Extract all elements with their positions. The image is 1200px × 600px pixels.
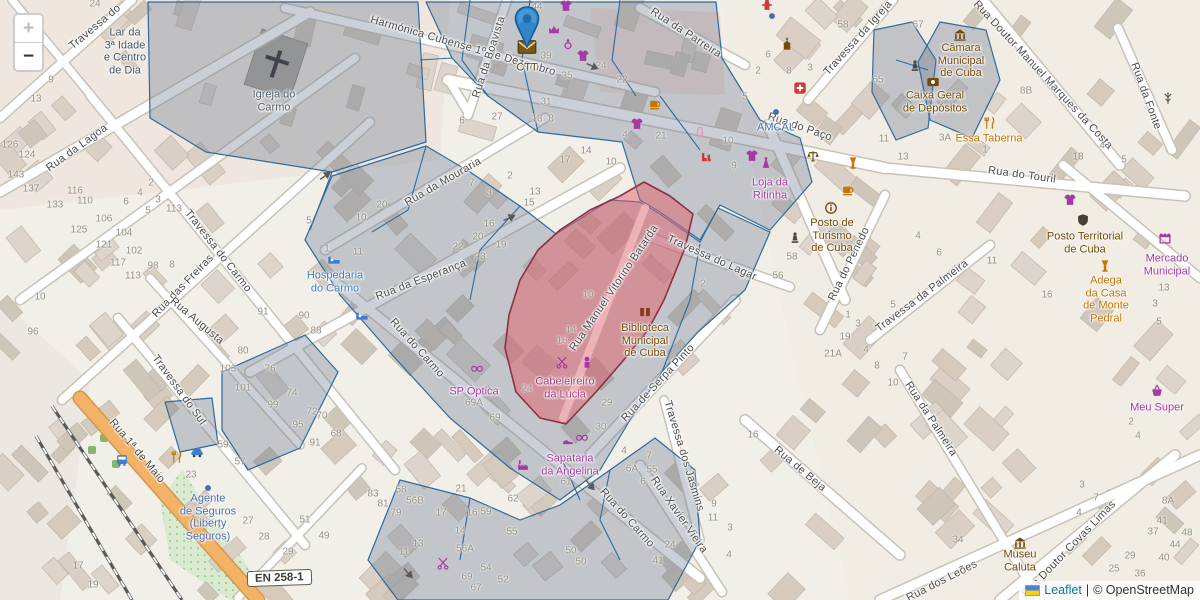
- zoom-out-button[interactable]: −: [15, 43, 42, 70]
- leaflet-link[interactable]: Leaflet: [1044, 583, 1082, 597]
- road-shield: EN 258-1: [247, 569, 312, 587]
- osm-attribution: © OpenStreetMap: [1093, 583, 1194, 597]
- zoom-control: + −: [13, 13, 44, 72]
- map-tiles: [0, 0, 1200, 600]
- ukraine-flag-icon: [1025, 585, 1040, 596]
- map-marker-pin[interactable]: [514, 6, 540, 48]
- map-canvas[interactable]: Travessa doHarmónica Cubense 1º de Dezem…: [0, 0, 1200, 600]
- zoom-in-button[interactable]: +: [15, 15, 42, 43]
- attribution-bar: Leaflet | © OpenStreetMap: [1019, 581, 1200, 600]
- attribution-separator: |: [1086, 583, 1089, 597]
